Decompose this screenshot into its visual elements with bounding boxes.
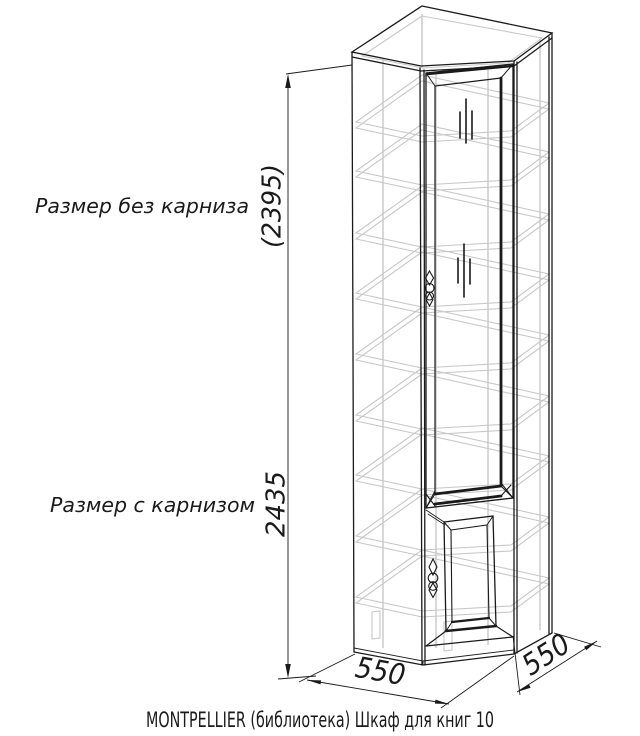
height-no-cornice-value: (2395) — [258, 164, 288, 248]
shelf-outlines — [356, 75, 549, 617]
height-with-cornice-label: Размер с карнизом — [50, 493, 255, 517]
width-dimension-value: 550 — [353, 650, 408, 692]
hidden-shelf-lines — [356, 14, 549, 651]
upper-glass-door — [425, 64, 513, 508]
drawing-caption: MONTPELLIER (библиотека) Шкаф для книг 1… — [146, 708, 494, 732]
height-dim-arrow-bottom — [285, 664, 291, 678]
technical-drawing-sheet: Размер без карниза (2395) Размер с карни… — [0, 0, 640, 736]
lower-panel-door — [426, 510, 513, 646]
height-with-cornice-value: 2435 — [262, 471, 292, 537]
upper-handle-top — [426, 271, 434, 285]
width-dim-arrow-right — [435, 700, 449, 704]
height-dim-arrow-top — [285, 74, 291, 88]
lower-door-inner-bottom — [452, 618, 489, 622]
glass-reflection-marks — [458, 99, 472, 297]
height-dimension-line — [278, 65, 352, 679]
height-no-cornice-label: Размер без карниза — [35, 194, 249, 218]
corner-bookcase-drawing: Размер без карниза (2395) Размер с карни… — [0, 0, 640, 736]
width-dim-arrow-left — [307, 680, 321, 684]
depth-dimension-value: 550 — [516, 626, 576, 682]
height-dim-extensions — [278, 65, 352, 679]
top-pentagon — [352, 6, 552, 66]
